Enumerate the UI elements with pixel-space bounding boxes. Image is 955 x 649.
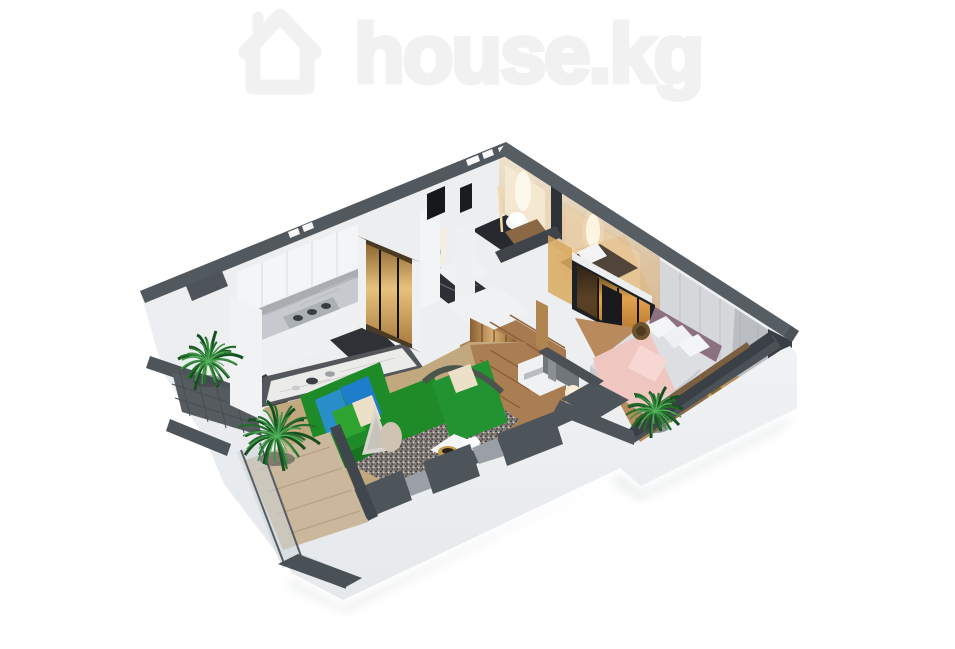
svg-text:house.kg: house.kg xyxy=(354,7,702,100)
